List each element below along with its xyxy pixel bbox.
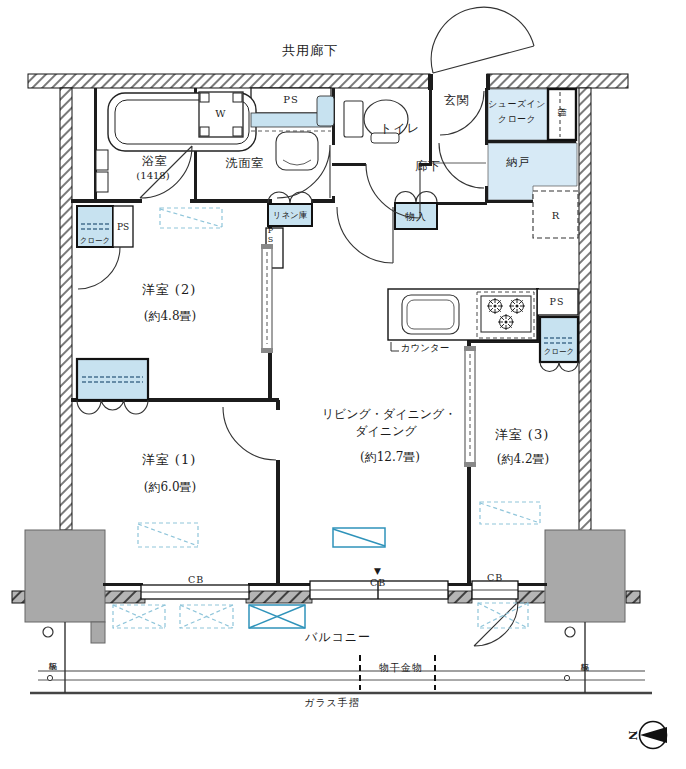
label-glass-handrail: ガラス手摺 [304, 698, 360, 708]
label-western-room-2: 洋室 (2) [142, 283, 197, 296]
label-living-dining-2: ダイニング [355, 425, 416, 437]
label-western-room-3: 洋室 (3) [495, 428, 550, 441]
label-laundry-fitting: 物干金物 [379, 663, 423, 673]
label-cb-left: CB [188, 575, 204, 585]
label-bathroom: 浴室 [142, 155, 168, 167]
label-counter: カウンター [401, 343, 449, 353]
label-cb-center: CB [370, 578, 386, 588]
label-shoe-closet-2: クローク [498, 115, 537, 124]
floor-plan: 共用廊下 PS W 浴室 (1418) 洗面室 トイレ 玄関 シューズイン クロ… [0, 0, 686, 769]
label-north: N [627, 730, 638, 741]
label-western-room-2-size: (約4.8畳) [144, 310, 196, 322]
label-living-dining-1: リビング・ダイニング・ [322, 408, 457, 420]
label-linen-closet: リネン庫 [273, 211, 308, 220]
label-balcony: バルコニー [305, 631, 371, 643]
toilet-icon [317, 96, 408, 143]
label-storage-box: 物入 [405, 212, 427, 222]
label-western-room-1-size: (約6.0畳) [144, 481, 196, 493]
label-living-dining-size: (約12.7畳) [360, 451, 420, 463]
label-hallway: 廊下 [415, 160, 441, 172]
label-ps-kitchen: PS [550, 297, 565, 307]
label-entrance: 玄関 [444, 94, 470, 106]
label-cb-right: CB [487, 573, 503, 583]
label-storeroom: 納戸 [506, 157, 530, 168]
label-western-room-1: 洋室 (1) [142, 453, 197, 466]
label-ps-washroom: PS [283, 95, 299, 105]
label-ps-vertical: PS [266, 226, 274, 244]
label-common-corridor: 共用廊下 [282, 44, 338, 57]
label-bathroom-size: (1418) [136, 171, 169, 181]
compass-icon [640, 722, 668, 749]
floor-plan-graphic [0, 0, 686, 769]
label-cb-triangle: ▼ [374, 567, 382, 576]
label-shelf: 棚 [557, 108, 566, 118]
label-refrigerator: R [552, 211, 561, 221]
label-washroom: 洗面室 [226, 157, 265, 169]
label-closet-3: クローク [544, 348, 575, 356]
label-toilet: トイレ [380, 122, 420, 134]
label-ps-left: PS [117, 223, 129, 232]
label-western-room-3-size: (約4.2畳) [497, 453, 549, 465]
label-washer: W [215, 109, 226, 119]
label-shoe-closet-1: シューズイン [488, 100, 546, 109]
label-closet-2: クローク [80, 237, 111, 245]
